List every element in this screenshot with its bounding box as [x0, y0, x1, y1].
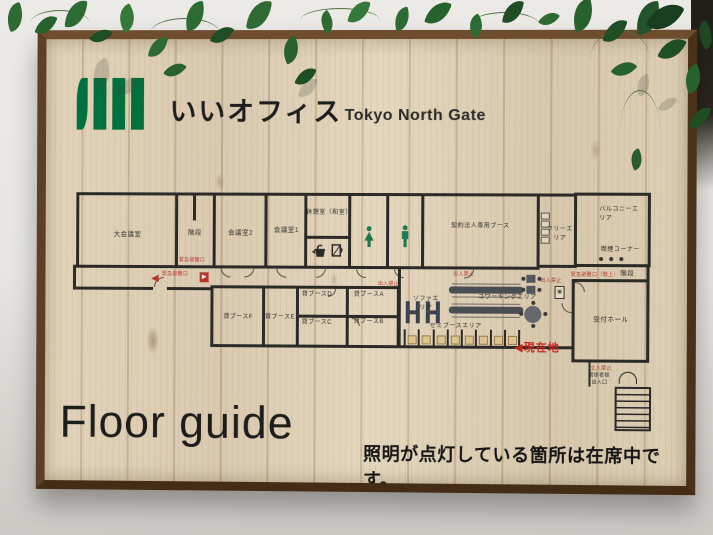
- seat-icon: [541, 229, 550, 236]
- leaf-icon: [113, 3, 140, 33]
- table-icon: [449, 306, 523, 313]
- exit-direction-arrow: ◀: [151, 273, 159, 284]
- leaf-shadow: [658, 93, 678, 115]
- chair-dot-icon: [521, 288, 525, 292]
- smoking-corner-label: 喫煙コーナー: [593, 246, 648, 256]
- vine-stem: [300, 8, 380, 33]
- brand-name: いいオフィス: [170, 90, 343, 129]
- female-toilet-icon: [363, 226, 375, 248]
- entrance-door-icon: [628, 372, 637, 384]
- chair-dot-icon: [537, 288, 541, 292]
- headline: Floor guide: [60, 396, 294, 450]
- bench-line: [452, 303, 520, 304]
- entrance-wall: [588, 362, 590, 386]
- entrance-door-icon: [619, 372, 628, 384]
- room-label: フリーエリア: [547, 226, 573, 245]
- male-toilet-icon: [399, 225, 411, 248]
- booth-label: 貸ブースA: [351, 291, 387, 300]
- leaf-icon: [392, 7, 412, 32]
- exit-icon: ▶: [200, 272, 209, 282]
- room-label: 受付ホール: [585, 315, 638, 325]
- leaf-icon: [2, 2, 27, 32]
- current-location-marker: ◀現在地: [514, 339, 560, 355]
- chair-dot-icon: [521, 277, 525, 281]
- smoking-dot-icon: [609, 257, 613, 261]
- semi-booth-icon: [461, 330, 475, 346]
- semi-booth-icon: [475, 330, 489, 346]
- semi-booth-icon: [489, 330, 503, 346]
- chair-dot-icon: [531, 324, 535, 328]
- chair-dot-icon: [519, 312, 523, 316]
- door-arc-icon: [221, 267, 231, 277]
- room-label: 会議室2: [219, 228, 263, 238]
- floor-guide-sign: いいオフィス Tokyo North Gate 大会議室 階段 緊急避難口 会議…: [36, 30, 698, 495]
- chair-dot-icon: [543, 312, 547, 316]
- seat-icon: [541, 237, 550, 244]
- room-label: 休憩室（和室）: [306, 209, 349, 218]
- square-table-icon: [526, 286, 535, 294]
- semi-booth-icon: [418, 329, 432, 345]
- seat-icon: [541, 213, 550, 220]
- vine-stem: [590, 30, 650, 91]
- elevator-icon: ▣: [555, 286, 565, 299]
- booth-label: 貸ブースE: [262, 313, 298, 322]
- room-label: 階段: [181, 228, 209, 238]
- chair-dot-icon: [531, 301, 535, 305]
- cup-icon: [331, 243, 344, 258]
- emergency-exit-label: 緊急避難口: [179, 256, 205, 263]
- semi-booth-row: [404, 329, 520, 346]
- leaf-icon: [538, 8, 560, 31]
- area-label: ソファエリア: [412, 295, 440, 314]
- room-balcony: [574, 193, 651, 268]
- door-arc-icon: [316, 268, 326, 278]
- no-entry-label: 出入禁止: [453, 270, 474, 277]
- stairs-right-label: 階段: [615, 269, 639, 279]
- door-arc-icon: [562, 303, 572, 313]
- occupancy-notice: 照明が点灯している箇所は在席中です。: [363, 440, 695, 495]
- no-entry-label: 出入禁止: [378, 280, 399, 287]
- stairs-icon: [614, 387, 651, 432]
- logo-bar-icon: [77, 78, 88, 130]
- booth-label: 貸ブースB: [351, 318, 387, 328]
- bench-line: [452, 316, 520, 317]
- square-table-icon: [526, 275, 535, 283]
- door-arc-icon: [276, 268, 286, 278]
- emergency-exit-label: 緊急避難口: [162, 270, 188, 277]
- corridor-wall: [73, 287, 153, 290]
- smoking-dot-icon: [619, 257, 623, 261]
- area-label: コワーキングエリア: [478, 294, 534, 304]
- room-label: 契約法人専用ブース: [434, 222, 526, 232]
- room-label: バルコニーエリア: [599, 206, 644, 225]
- seat-icon: [541, 221, 550, 228]
- round-table-icon: [524, 306, 541, 323]
- leaf-icon: [246, 0, 272, 31]
- semi-booth-icon: [432, 329, 446, 345]
- corridor-wall: [167, 287, 213, 290]
- door-arc-icon: [356, 268, 366, 278]
- semi-booth-icon: [404, 329, 418, 345]
- current-location-label: 現在地: [524, 342, 560, 354]
- central-wall: [398, 268, 401, 348]
- room-label: 会議室1: [266, 226, 306, 236]
- booth-label: 貸ブースC: [300, 319, 334, 328]
- entrance-label-line1: 関係者様: [588, 372, 609, 379]
- leaf-icon: [569, 0, 598, 32]
- booth-label: 貸ブースF: [214, 313, 262, 323]
- kettle-icon: [312, 242, 328, 259]
- booth-label: 貸ブースD: [300, 291, 334, 300]
- stairs-stub-wall: [193, 195, 196, 221]
- rest-room-divider: [306, 236, 349, 239]
- smoking-dot-icon: [599, 257, 603, 261]
- keep-out-label: 立入禁止: [591, 365, 612, 372]
- no-entry-label: 出入禁止: [540, 277, 561, 284]
- brand-location: Tokyo North Gate: [345, 107, 486, 125]
- bench-line: [452, 283, 520, 284]
- emergency-exit-upstairs-label: 緊急避難口（階上）: [571, 271, 619, 278]
- door-arc-icon: [244, 267, 254, 277]
- leaf-icon: [424, 0, 452, 29]
- entrance-label-line2: 出入口: [591, 379, 607, 386]
- room-label: 大会議室: [88, 230, 167, 240]
- semi-booth-icon: [446, 329, 460, 345]
